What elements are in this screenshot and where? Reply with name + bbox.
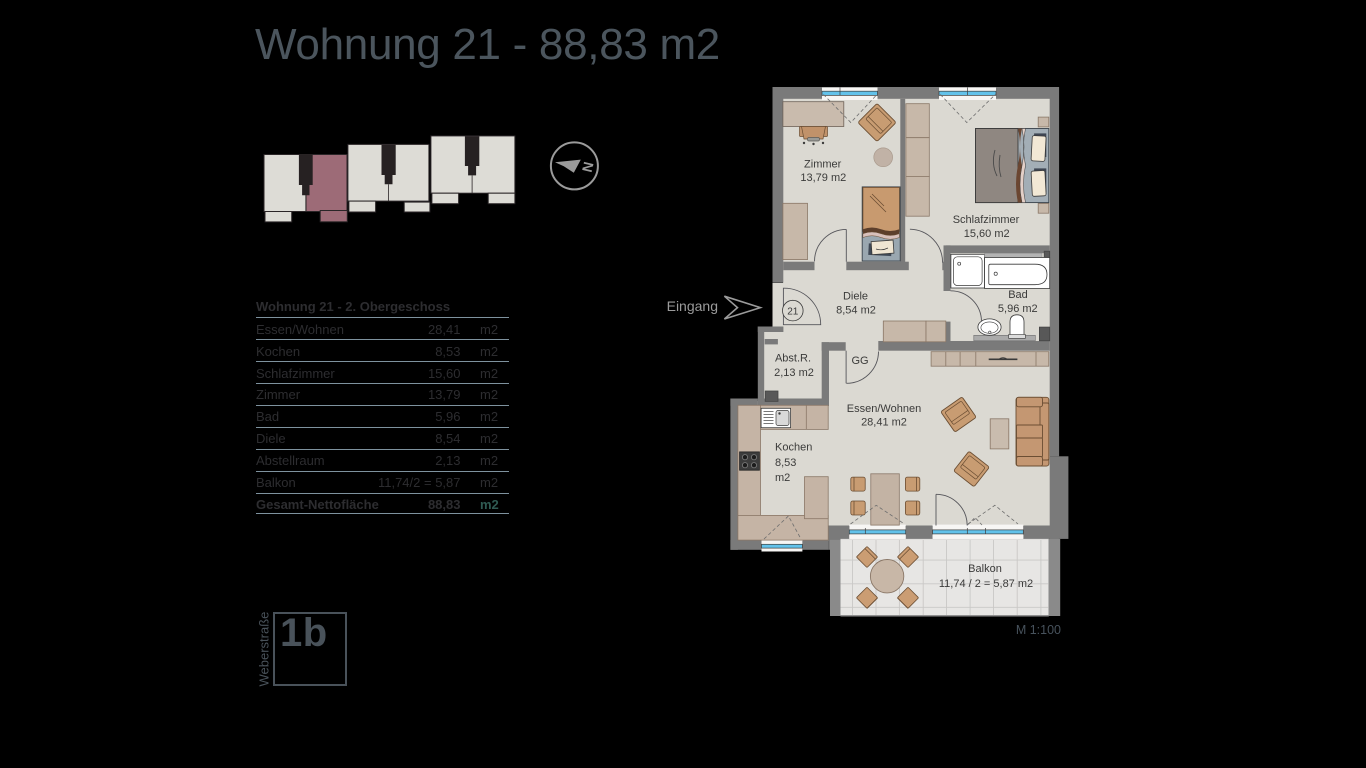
svg-text:m2: m2	[775, 472, 790, 484]
svg-text:Bad: Bad	[1008, 289, 1028, 301]
svg-text:13,79 m2: 13,79 m2	[800, 172, 846, 184]
svg-text:21: 21	[787, 306, 799, 317]
svg-text:8,53: 8,53	[775, 457, 796, 469]
svg-text:5,96 m2: 5,96 m2	[998, 303, 1038, 315]
svg-text:Diele: Diele	[843, 291, 868, 303]
svg-text:Eingang: Eingang	[667, 298, 718, 314]
svg-text:Balkon: Balkon	[968, 563, 1002, 575]
svg-text:M 1:100: M 1:100	[1016, 623, 1061, 637]
svg-text:15,60 m2: 15,60 m2	[964, 228, 1010, 240]
svg-text:8,54 m2: 8,54 m2	[836, 305, 876, 317]
svg-text:Abst.R.: Abst.R.	[775, 353, 811, 365]
svg-text:2,13 m2: 2,13 m2	[774, 367, 814, 379]
svg-text:Essen/Wohnen: Essen/Wohnen	[847, 403, 921, 415]
svg-text:GG: GG	[851, 355, 868, 367]
svg-text:N: N	[579, 160, 597, 173]
svg-text:28,41 m2: 28,41 m2	[861, 417, 907, 429]
svg-text:11,74 / 2 = 5,87 m2: 11,74 / 2 = 5,87 m2	[939, 578, 1033, 590]
svg-text:Kochen: Kochen	[775, 442, 812, 454]
svg-text:Schlafzimmer: Schlafzimmer	[953, 214, 1020, 226]
svg-text:Zimmer: Zimmer	[804, 159, 842, 171]
